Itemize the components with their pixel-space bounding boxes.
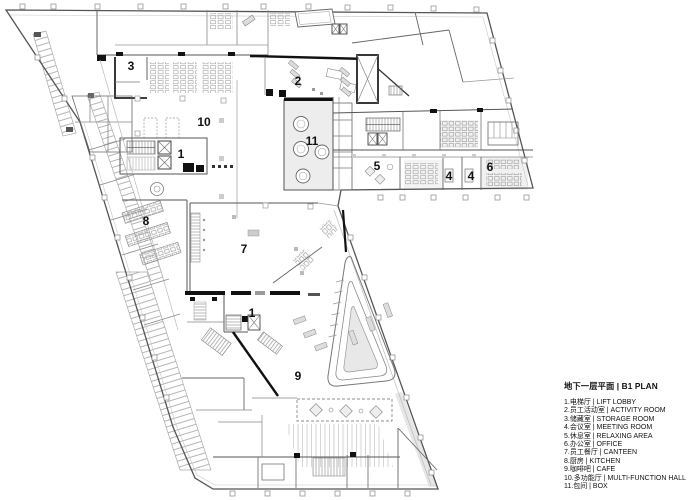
room-label-11: 11 <box>306 134 319 148</box>
room-label-9: 9 <box>295 369 302 383</box>
room-label-1: 1 <box>178 147 185 161</box>
legend-item: 3.储藏室 | STORAGE ROOM <box>564 416 700 424</box>
room-label-2: 2 <box>295 74 302 88</box>
legend-item: 11.包间 | BOX <box>564 483 700 491</box>
canteen <box>190 203 339 291</box>
legend-item: 5.休息室 | RELAXING AREA <box>564 433 700 441</box>
legend-item: 7.员工餐厅 | CANTEEN <box>564 449 700 457</box>
lift-core-upper <box>120 138 233 174</box>
perimeter-columns <box>20 4 529 496</box>
building-outline <box>6 10 533 489</box>
room-label-4: 4 <box>446 169 453 183</box>
room-label-1: 1 <box>249 306 256 320</box>
wing-upper <box>330 12 514 103</box>
room-label-10: 10 <box>197 115 211 129</box>
canteen-south-wall <box>185 291 320 296</box>
legend-items: 1.电梯厅 | LIFT LOBBY2.员工活动室 | ACTIVITY ROO… <box>564 399 700 491</box>
room-label-5: 5 <box>374 159 381 173</box>
plan-legend: 地下一层平面 | B1 PLAN 1.电梯厅 | LIFT LOBBY2.员工活… <box>564 380 700 491</box>
multi-function-hall <box>135 62 237 218</box>
legend-title: 地下一层平面 | B1 PLAN <box>564 380 700 392</box>
room-label-4: 4 <box>468 169 475 183</box>
floor-plan-page: 321011154468719 地下一层平面 | B1 PLAN 1.电梯厅 |… <box>0 0 700 500</box>
top-band <box>97 9 335 61</box>
lift-core-lower <box>187 295 283 396</box>
room-label-7: 7 <box>241 242 248 256</box>
room-label-3: 3 <box>128 59 135 73</box>
legend-item: 4.会议室 | MEETING ROOM <box>564 424 700 432</box>
room-label-6: 6 <box>487 160 494 174</box>
activity-room <box>250 56 409 97</box>
room-label-8: 8 <box>143 214 150 228</box>
cafe-spiral <box>293 210 397 386</box>
legend-item: 8.厨房 | KITCHEN <box>564 458 700 466</box>
legend-item: 10.多功能厅 | MULTI-FUNCTION HALL <box>564 475 700 483</box>
legend-item: 9.咖啡吧 | CAFE <box>564 466 700 474</box>
legend-item: 2.员工活动室 | ACTIVITY ROOM <box>564 407 700 415</box>
